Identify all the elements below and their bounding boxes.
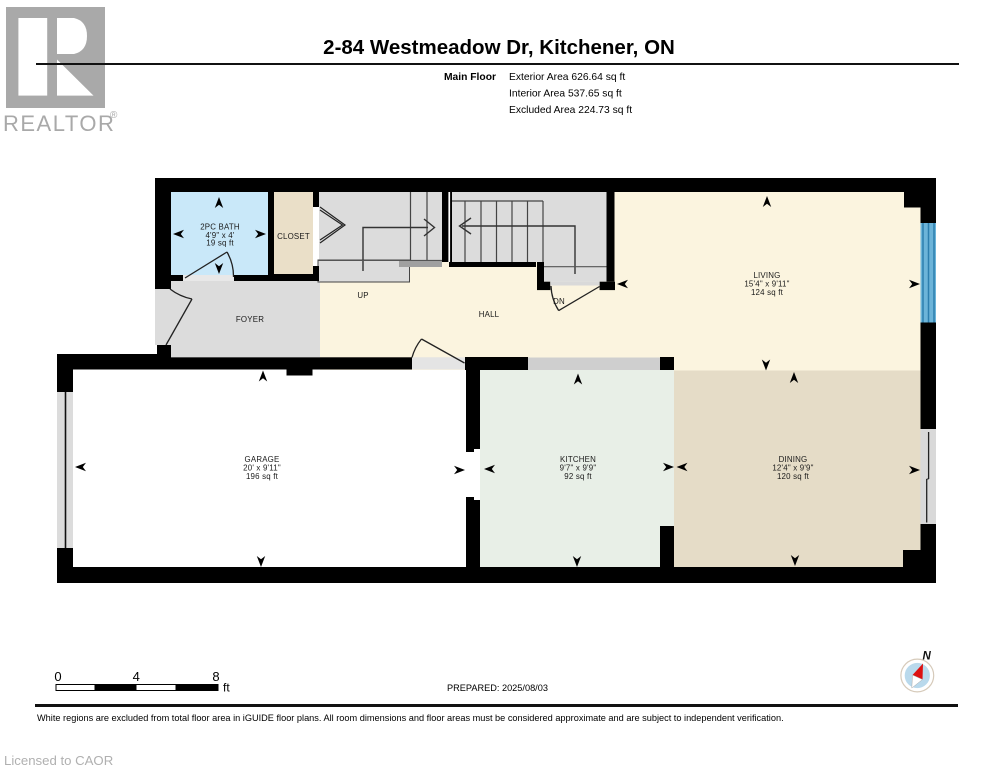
- svg-text:ft: ft: [223, 681, 230, 695]
- svg-text:0: 0: [54, 669, 61, 684]
- svg-text:CLOSET: CLOSET: [277, 232, 310, 241]
- svg-text:19 sq ft: 19 sq ft: [206, 239, 234, 248]
- svg-text:8: 8: [212, 669, 219, 684]
- svg-text:Main Floor: Main Floor: [444, 72, 496, 83]
- svg-text:92 sq ft: 92 sq ft: [564, 472, 592, 481]
- svg-text:N: N: [923, 651, 932, 663]
- svg-text:PREPARED: 2025/08/03: PREPARED: 2025/08/03: [447, 683, 548, 693]
- svg-text:White regions are excluded fro: White regions are excluded from total fl…: [37, 713, 784, 723]
- svg-text:2-84 Westmeadow Dr, Kitchener,: 2-84 Westmeadow Dr, Kitchener, ON: [323, 36, 675, 59]
- svg-text:Excluded Area 224.73 sq ft: Excluded Area 224.73 sq ft: [509, 105, 632, 116]
- svg-text:4: 4: [133, 669, 140, 684]
- svg-text:REALTOR: REALTOR: [3, 111, 115, 136]
- svg-text:UP: UP: [357, 291, 368, 300]
- svg-text:Licensed to CAOR: Licensed to CAOR: [4, 753, 113, 768]
- svg-text:196 sq ft: 196 sq ft: [246, 472, 279, 481]
- svg-text:DN: DN: [553, 297, 565, 306]
- svg-text:Interior Area 537.65 sq ft: Interior Area 537.65 sq ft: [509, 89, 622, 100]
- svg-text:Exterior Area 626.64 sq ft: Exterior Area 626.64 sq ft: [509, 72, 625, 83]
- svg-text:124 sq ft: 124 sq ft: [751, 288, 784, 297]
- svg-text:HALL: HALL: [479, 310, 500, 319]
- svg-text:®: ®: [110, 110, 118, 121]
- svg-text:120 sq ft: 120 sq ft: [777, 472, 810, 481]
- svg-text:FOYER: FOYER: [236, 315, 264, 324]
